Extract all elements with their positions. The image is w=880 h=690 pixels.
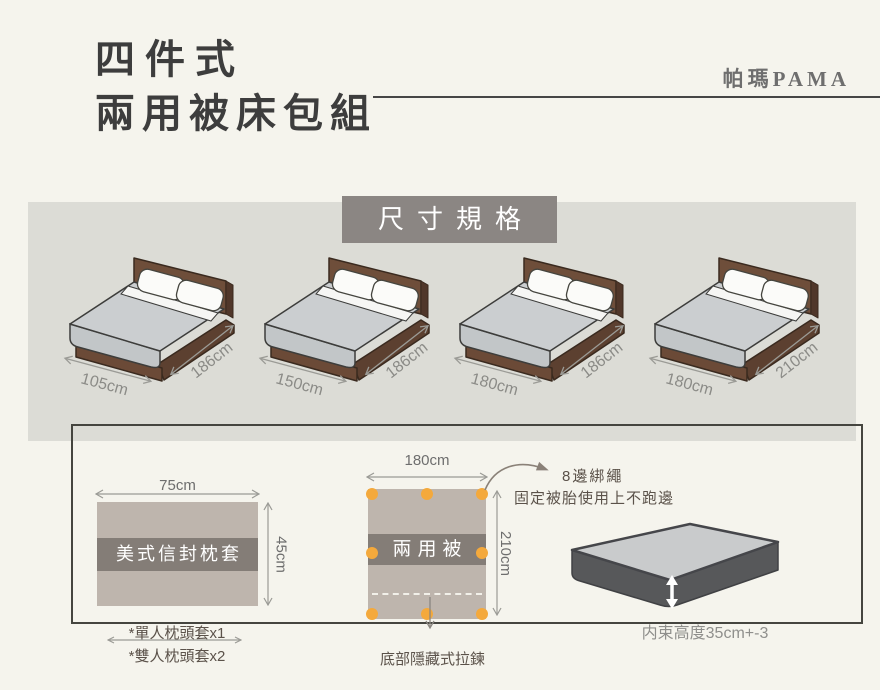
page-title-line1: 四件式 (95, 40, 245, 80)
quilt-tie-desc: 固定被胎使用上不跑邊 (514, 487, 674, 508)
bed-illustration-icon: 150cm 186cm (253, 252, 443, 407)
page-title-line2: 兩用被床包組 (95, 94, 377, 134)
quilt-width-label: 180cm (368, 452, 486, 469)
pillowcase-note-divider-arrow (107, 635, 242, 645)
quilt-zipper-note: 底部隱藏式拉鍊 (355, 648, 510, 669)
bed-diagram-single: 105cm 186cm (58, 252, 248, 407)
bed-illustration-icon: 180cm 186cm (448, 252, 638, 407)
quilt-zipper-dashed-line (372, 593, 482, 595)
bed-width-label: 150cm (274, 370, 325, 399)
quilt-band-label: 兩用被 (368, 534, 486, 565)
mattress-height-note: 内束高度35cm+-3 (620, 619, 790, 643)
tie-dot (421, 488, 433, 500)
bed-width-label: 180cm (469, 370, 520, 399)
tie-dot (476, 547, 488, 559)
bed-diagram-double: 150cm 186cm (253, 252, 443, 407)
quilt-height-label: 210cm (497, 526, 514, 581)
quilt-tie-title: 8邊綁繩 (562, 465, 623, 486)
brand-name: 帕瑪PAMA (723, 63, 850, 93)
bed-illustration-icon: 105cm 186cm (58, 252, 248, 407)
header-divider (373, 96, 880, 98)
section-title-badge: 尺寸規格 (342, 196, 557, 243)
bed-illustration-icon: 180cm 210cm (643, 252, 833, 407)
bed-diagram-queen: 180cm 186cm (448, 252, 638, 407)
bed-diagram-king: 180cm 210cm (643, 252, 833, 407)
pillowcase-swatch: 美式信封枕套 (97, 502, 258, 606)
bed-width-label: 180cm (664, 370, 715, 399)
tie-dot (476, 608, 488, 620)
quilt-width-arrow (366, 471, 488, 483)
mattress-illustration-icon (555, 513, 805, 618)
tie-dot (366, 547, 378, 559)
tie-dot (366, 608, 378, 620)
pillowcase-width-arrow (95, 488, 260, 500)
tie-dot (366, 488, 378, 500)
bed-width-label: 105cm (79, 370, 130, 399)
pillowcase-height-label: 45cm (273, 530, 290, 580)
pillowcase-band-label: 美式信封枕套 (97, 538, 258, 571)
zipper-pointer-arrow (424, 597, 436, 635)
bedding-spec-infographic: 四件式 兩用被床包組 帕瑪PAMA 尺寸規格 105cm (0, 0, 880, 690)
pillowcase-note-double: *雙人枕頭套x2 (77, 645, 277, 666)
